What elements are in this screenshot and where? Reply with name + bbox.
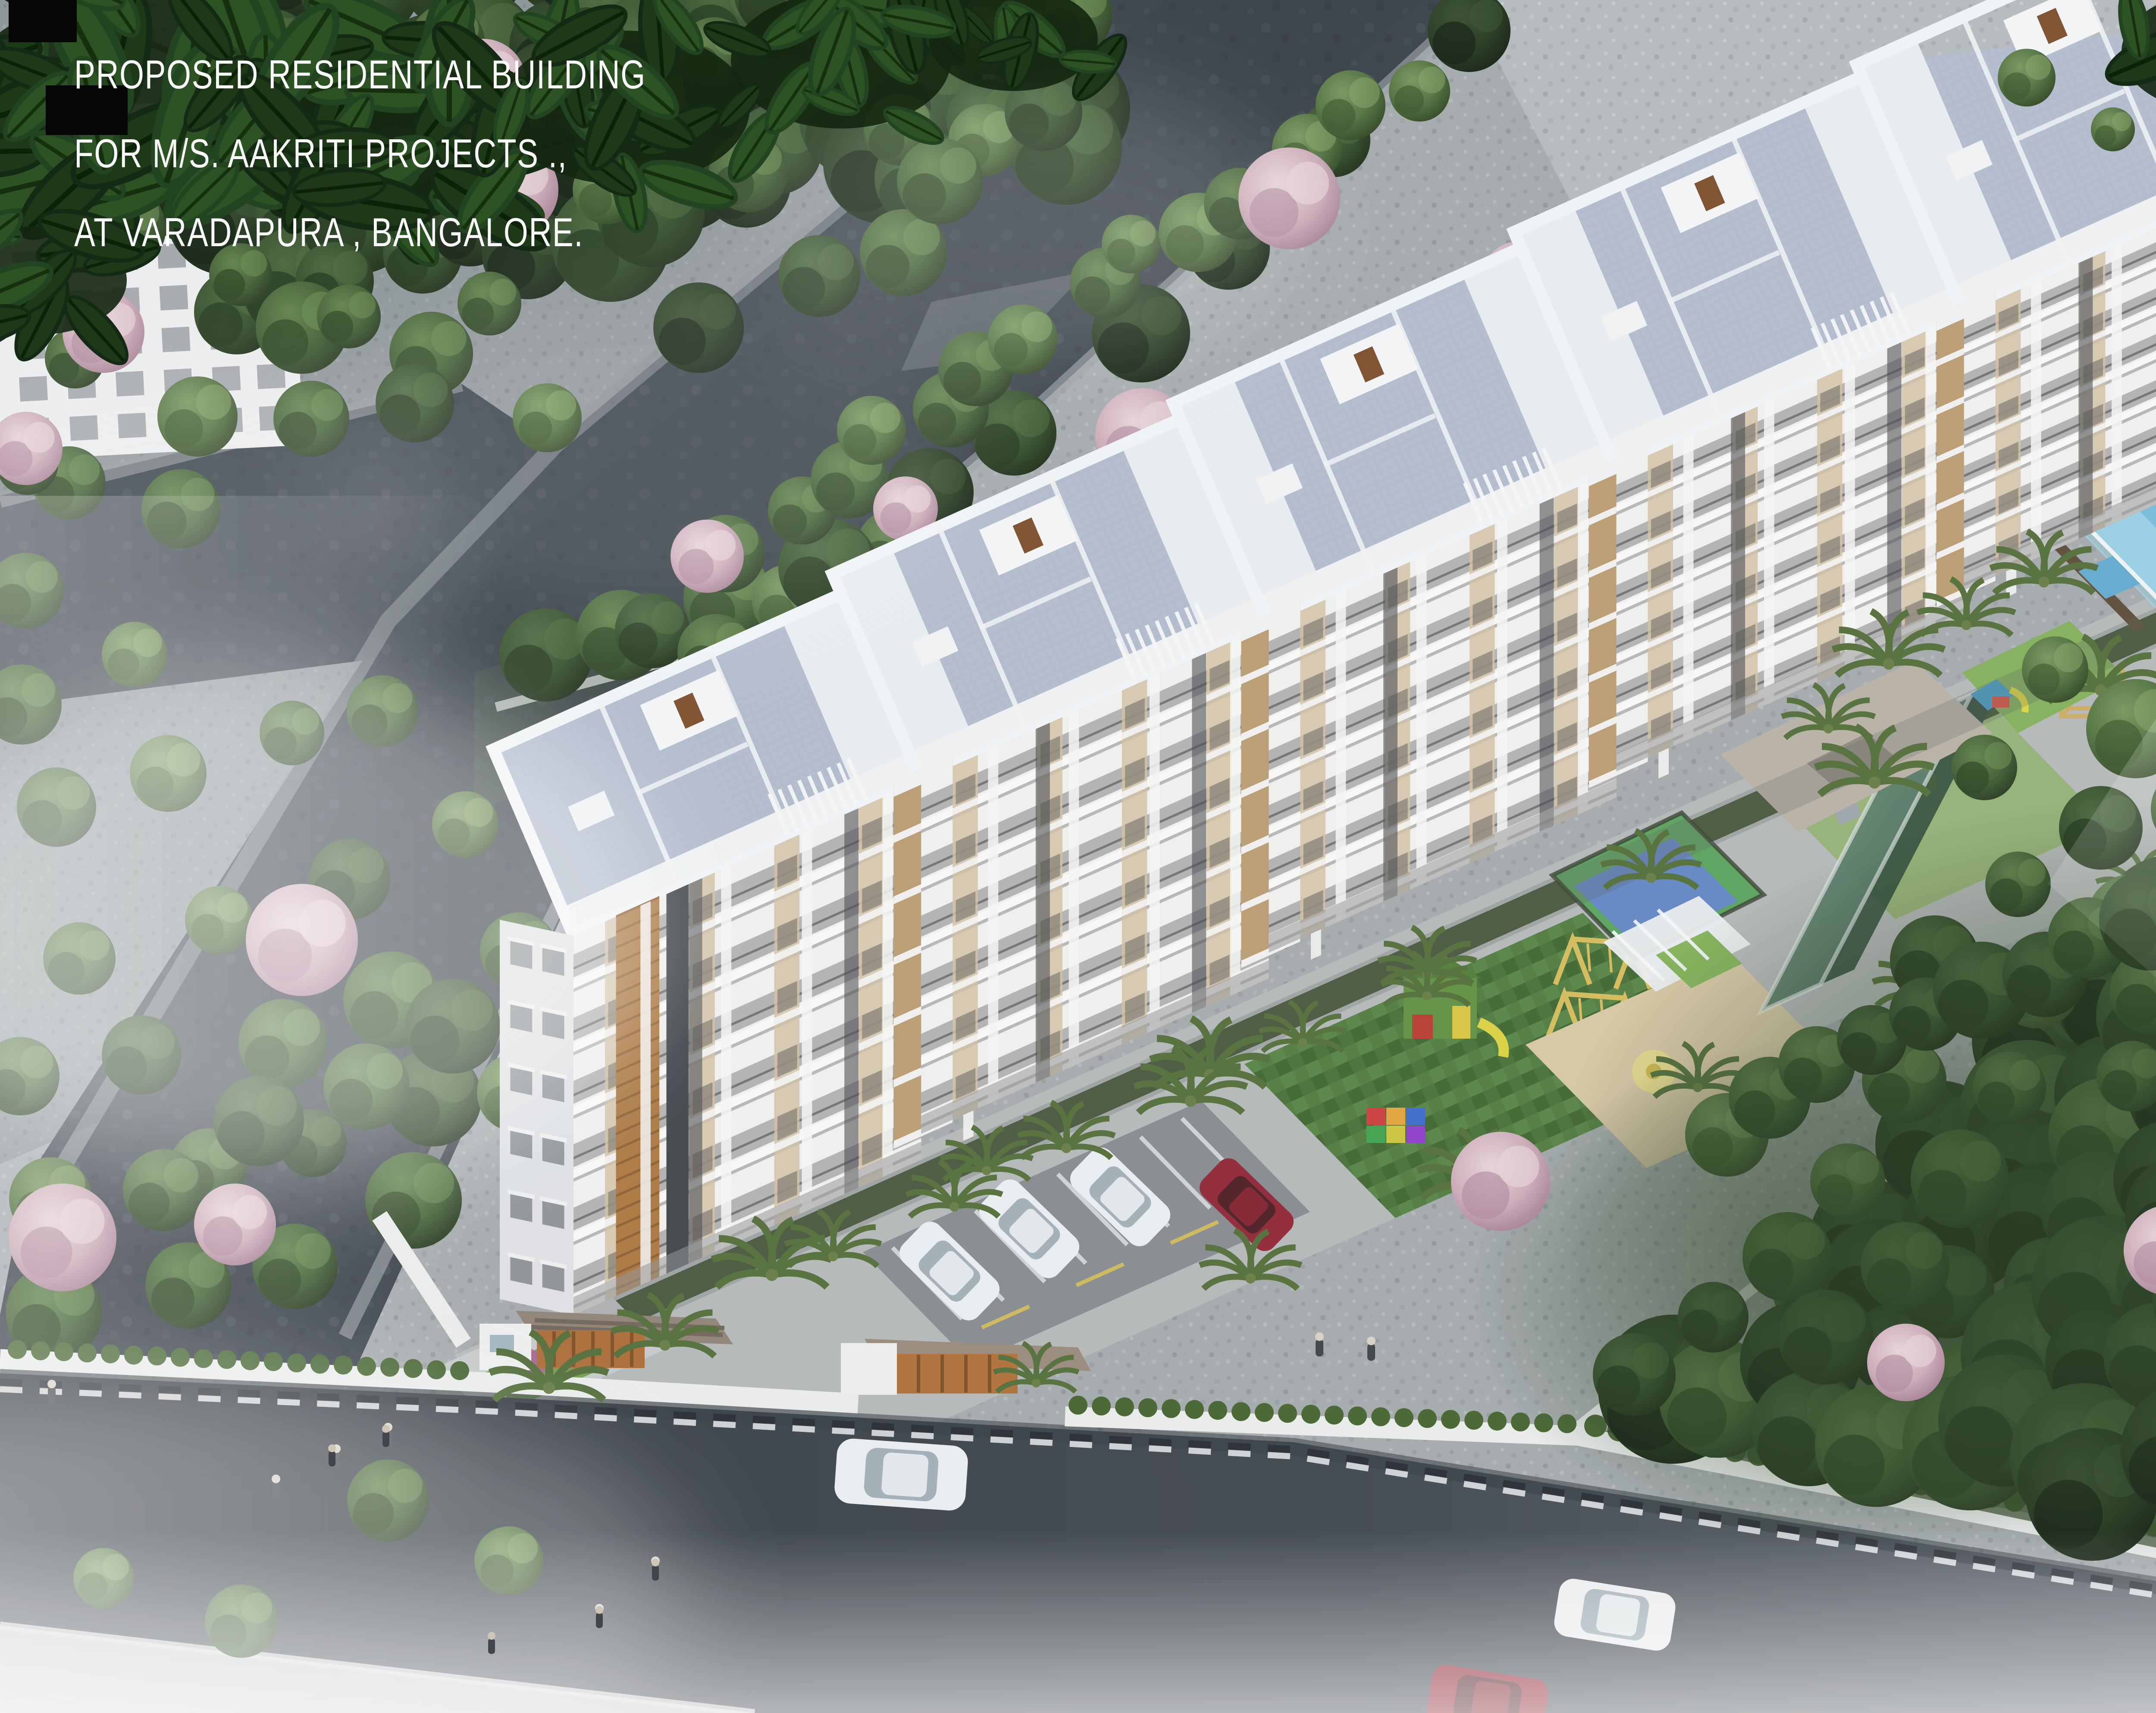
svg-text:AT VARADAPURA , BANGALORE.: AT VARADAPURA , BANGALORE.	[74, 210, 583, 255]
svg-text:FOR M/S. AAKRITI PROJECTS .,: FOR M/S. AAKRITI PROJECTS .,	[74, 131, 567, 176]
svg-text:PROPOSED RESIDENTIAL BUILDING: PROPOSED RESIDENTIAL BUILDING	[74, 52, 646, 97]
